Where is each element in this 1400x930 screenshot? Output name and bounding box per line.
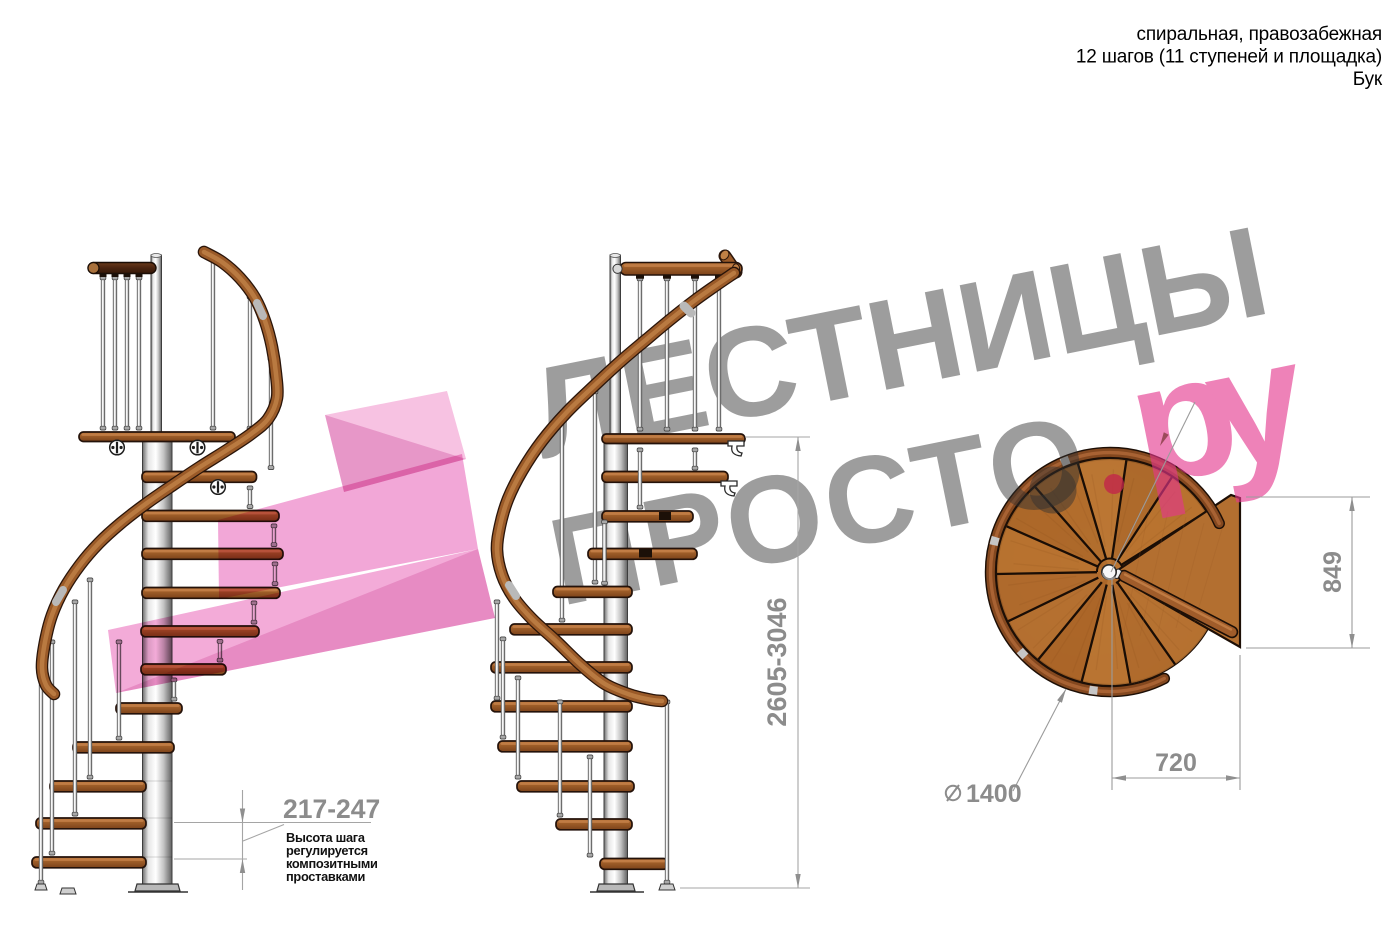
svg-text:1400: 1400 xyxy=(966,780,1022,808)
svg-text:12 шагов (11 ступеней и площад: 12 шагов (11 ступеней и площадка) xyxy=(1076,47,1382,68)
svg-text:849: 849 xyxy=(1319,551,1347,593)
svg-text:720: 720 xyxy=(1155,749,1197,777)
svg-text:217-247: 217-247 xyxy=(283,794,380,824)
svg-text:проставками: проставками xyxy=(286,869,365,884)
svg-text:Бук: Бук xyxy=(1353,69,1383,90)
svg-text:2605-3046: 2605-3046 xyxy=(762,597,792,726)
svg-text:спиральная, правозабежная: спиральная, правозабежная xyxy=(1137,24,1382,45)
